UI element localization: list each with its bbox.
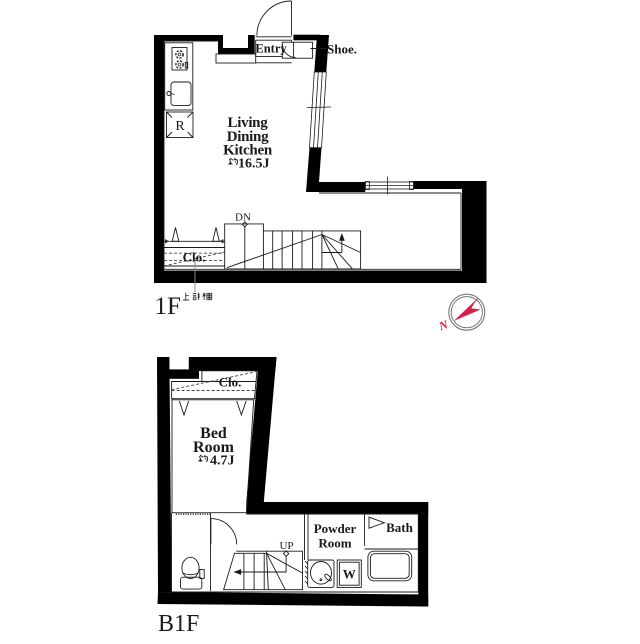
svg-text:Shoe.: Shoe. [327, 42, 357, 57]
svg-text:UP: UP [279, 540, 293, 552]
svg-text:R: R [175, 119, 185, 134]
svg-text:Room: Room [318, 536, 351, 551]
svg-text:Clo.: Clo. [219, 375, 242, 390]
svg-text:16.5J: 16.5J [238, 157, 270, 172]
svg-text:DN: DN [235, 212, 251, 224]
svg-text:1F: 1F [155, 293, 181, 320]
svg-text:W: W [343, 567, 356, 582]
svg-text:Clo.: Clo. [183, 250, 206, 265]
svg-text:Bath: Bath [386, 520, 414, 535]
svg-text:B1F: B1F [158, 611, 199, 637]
svg-text:Entry: Entry [255, 42, 287, 56]
svg-text:Powder: Powder [314, 521, 357, 536]
svg-text:4.7J: 4.7J [210, 454, 235, 469]
